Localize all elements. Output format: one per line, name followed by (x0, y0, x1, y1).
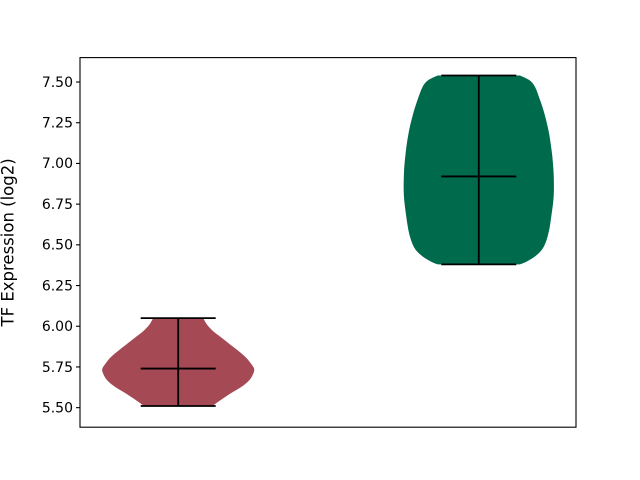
y-tick-label: 7.00 (42, 156, 73, 172)
y-tick-label: 5.50 (42, 400, 73, 416)
plot-area (80, 58, 576, 428)
y-tick-label: 7.25 (42, 116, 73, 132)
y-tick-label: 7.50 (42, 75, 73, 91)
y-tick-label: 6.25 (42, 278, 73, 294)
figure: 5.505.756.006.256.506.757.007.257.50 TF … (0, 0, 640, 480)
violin-group-2 (404, 76, 554, 265)
violin-chart: 5.505.756.006.256.506.757.007.257.50 TF … (0, 0, 640, 480)
y-tick-label: 6.75 (42, 197, 73, 213)
y-tick-label: 6.50 (42, 238, 73, 254)
y-tick-label: 6.00 (42, 319, 73, 335)
y-tick-label: 5.75 (42, 360, 73, 376)
y-axis-label: TF Expression (log2) (0, 158, 18, 327)
